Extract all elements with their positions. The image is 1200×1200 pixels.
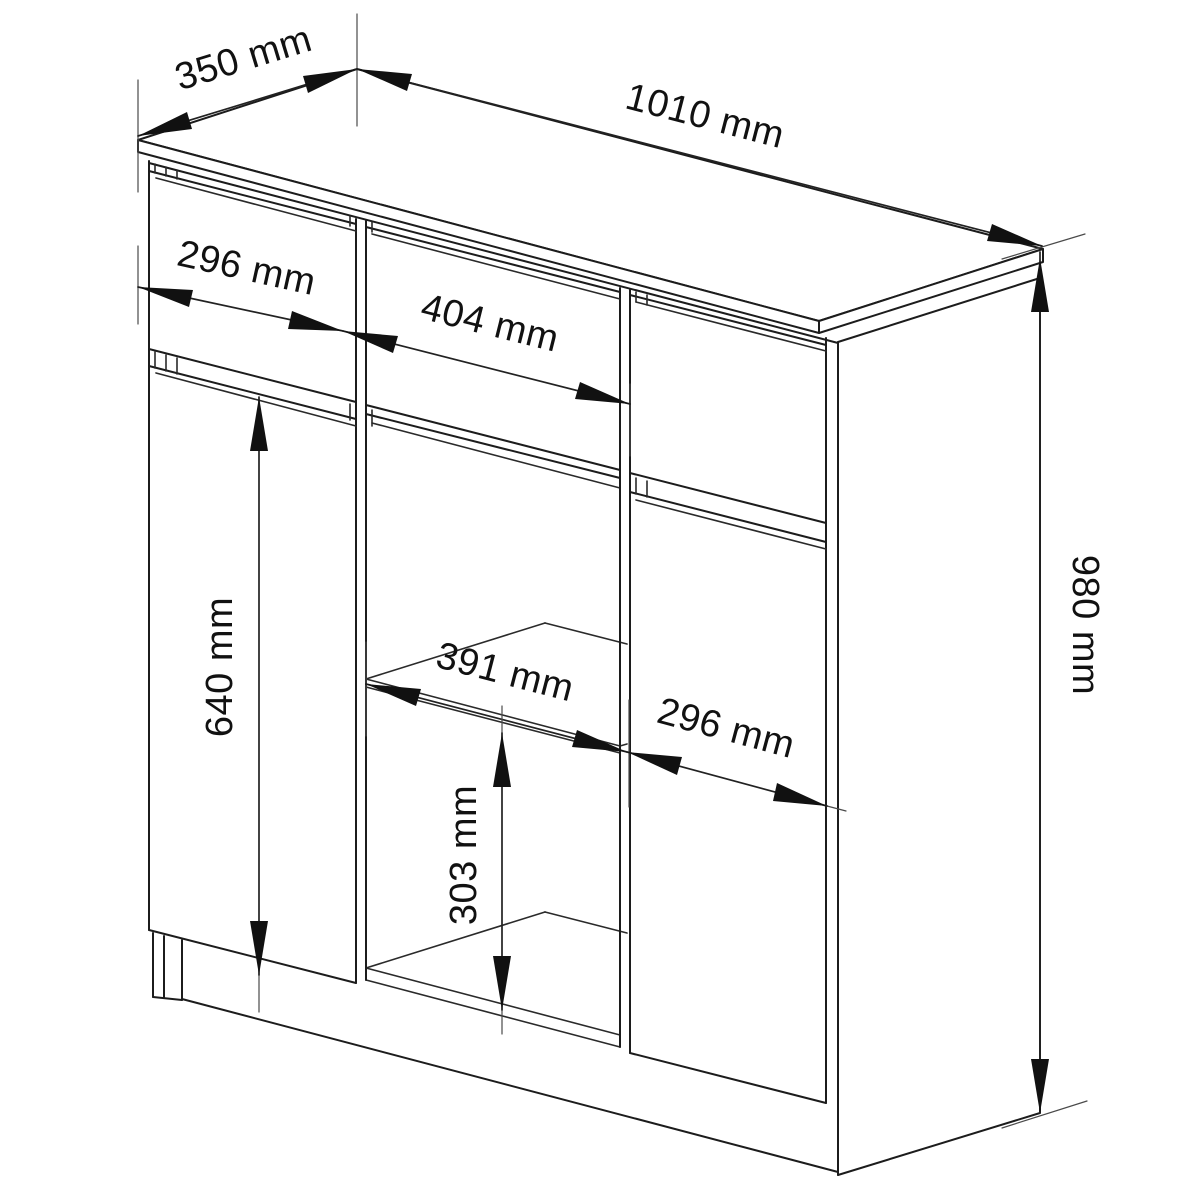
arrowhead — [493, 733, 511, 787]
arrowhead — [572, 730, 627, 752]
dim-label-total-height: 980 mm — [1064, 555, 1106, 695]
dim-label-top-depth: 350 mm — [170, 18, 316, 99]
sideboard-dimension-drawing: 350 mm 1010 mm 980 mm 296 mm 404 mm — [0, 0, 1200, 1200]
bottom-shelf — [366, 912, 627, 1047]
dimension-drawing-canvas: 350 mm 1010 mm 980 mm 296 mm 404 mm — [0, 0, 1200, 1200]
right-drawer-front — [630, 295, 826, 523]
right-side-panel — [838, 278, 1040, 1175]
front-left-foot — [153, 933, 182, 1000]
arrowhead — [366, 684, 421, 706]
open-shelf-compartment — [366, 414, 627, 1047]
dim-lower-shelf-height: 303 mm — [443, 706, 511, 1034]
dim-label-lower-shelf-height: 303 mm — [443, 785, 485, 925]
dim-label-left-door-height: 640 mm — [199, 597, 241, 737]
left-door — [149, 366, 356, 983]
dim-label-shelf-opening-width: 391 mm — [432, 634, 578, 710]
